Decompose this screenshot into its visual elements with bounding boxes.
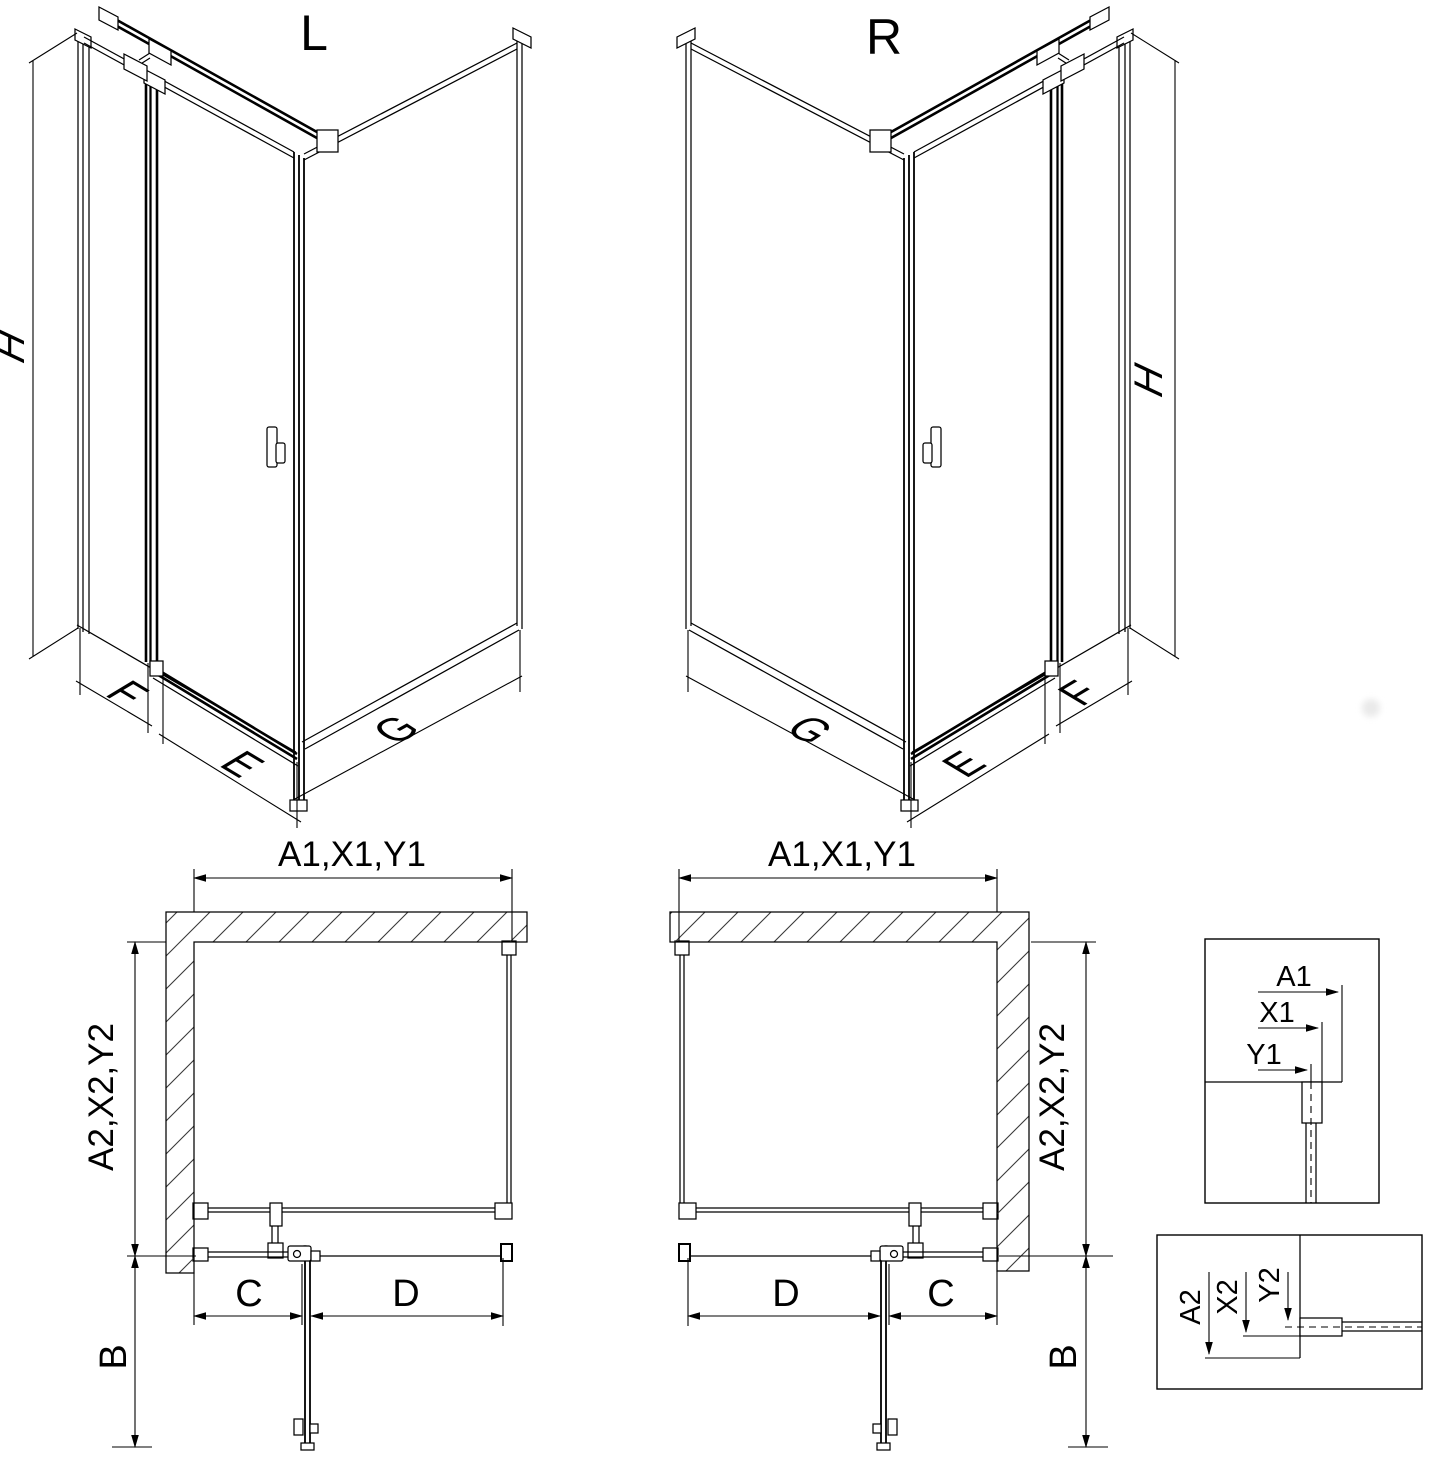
bottom-rail: [150, 661, 298, 766]
plan-left-b-label: B: [93, 1344, 135, 1369]
dim-label-h-right: H: [1126, 355, 1171, 405]
dim-label-g-left: G: [362, 709, 432, 752]
dim-h: [29, 33, 78, 659]
dim-g: [293, 630, 522, 800]
plan-left-depth-label: A2,X2,Y2: [82, 1023, 121, 1171]
plan-open-door: [294, 1261, 318, 1450]
rail-end-block: [150, 661, 163, 676]
watermark-dot: [1362, 699, 1380, 717]
plan-wall-bracket-top: [502, 941, 516, 955]
detail-a1-label: A1: [1276, 961, 1311, 993]
plan-door-foot: [301, 1443, 314, 1450]
labels: L R H F E G H F E G A1,X1,Y1 A2,X2,Y2 B …: [0, 5, 1312, 1370]
detail-x2-label: X2: [1212, 1279, 1244, 1314]
dim-label-e-right: E: [931, 744, 997, 784]
dim-label-f-right: F: [1047, 674, 1112, 713]
detail-y1-label: Y1: [1246, 1039, 1281, 1071]
corner-post: [290, 152, 307, 811]
plan-right-depth-label: A2,X2,Y2: [1033, 1023, 1072, 1171]
dim-label-h-left: H: [0, 321, 33, 371]
plan-left-wall: [166, 912, 527, 1273]
plan-glass-assembly-left: [193, 941, 516, 1450]
plan-left-width-label: A1,X1,Y1: [278, 835, 426, 874]
plan-door-handle-a: [294, 1419, 303, 1435]
detail-x1-label: X1: [1259, 997, 1294, 1029]
detail-a2-label: A2: [1175, 1289, 1207, 1324]
plan-bar-end-block: [495, 1203, 512, 1219]
plan-bar-tee: [268, 1243, 283, 1258]
view-label-left: L: [300, 5, 328, 61]
plan-view-left: [112, 869, 527, 1447]
plan-glass-assembly-right: [675, 941, 998, 1450]
plan-bar-link: [272, 1226, 278, 1243]
plan-left-c-label: C: [235, 1273, 262, 1315]
dim-label-f-left: F: [94, 674, 159, 713]
detail-wall-profile: [1302, 1082, 1322, 1123]
plan-pivot-screw: [294, 1251, 301, 1258]
plan-track-wall-block: [193, 1248, 208, 1261]
corner-foot: [290, 800, 307, 811]
drawing-svg: L R H F E G H F E G A1,X1,Y1 A2,X2,Y2 B …: [0, 0, 1430, 1460]
plan-stabilizer-bar: [196, 1208, 503, 1212]
shower-enclosure-technical-drawing: L R H F E G H F E G A1,X1,Y1 A2,X2,Y2 B …: [0, 0, 1430, 1460]
plan-right-c-label: C: [927, 1273, 954, 1315]
dim-e: [159, 674, 301, 828]
detail-y2-label: Y2: [1254, 1267, 1286, 1302]
wall-profile-edge: [75, 29, 91, 634]
plan-bar-mid-connector: [270, 1203, 282, 1226]
plan-bar-wall-block: [193, 1203, 208, 1219]
door-handle: [267, 427, 285, 467]
plan-right-d-label: D: [772, 1273, 799, 1315]
front-face-top-edge: [84, 37, 294, 152]
bar-corner-bracket: [317, 130, 338, 152]
plan-right-width-label: A1,X1,Y1: [768, 835, 916, 874]
plan-right-wall: [670, 912, 1029, 1271]
dim-label-g-right: G: [775, 709, 845, 752]
plan-right-b-label: B: [1043, 1344, 1085, 1369]
bar-wall-bracket: [124, 54, 147, 81]
plan-pivot-bracket: [311, 1251, 320, 1261]
dim-label-e-left: E: [208, 744, 274, 784]
plan-side-panel: [507, 955, 511, 1203]
door-hinge-profile: [144, 69, 165, 668]
bar-end-cap: [99, 7, 118, 30]
plan-door-handle-b: [310, 1424, 318, 1433]
plan-left-d-label: D: [392, 1273, 419, 1315]
view-label-right: R: [866, 9, 902, 65]
